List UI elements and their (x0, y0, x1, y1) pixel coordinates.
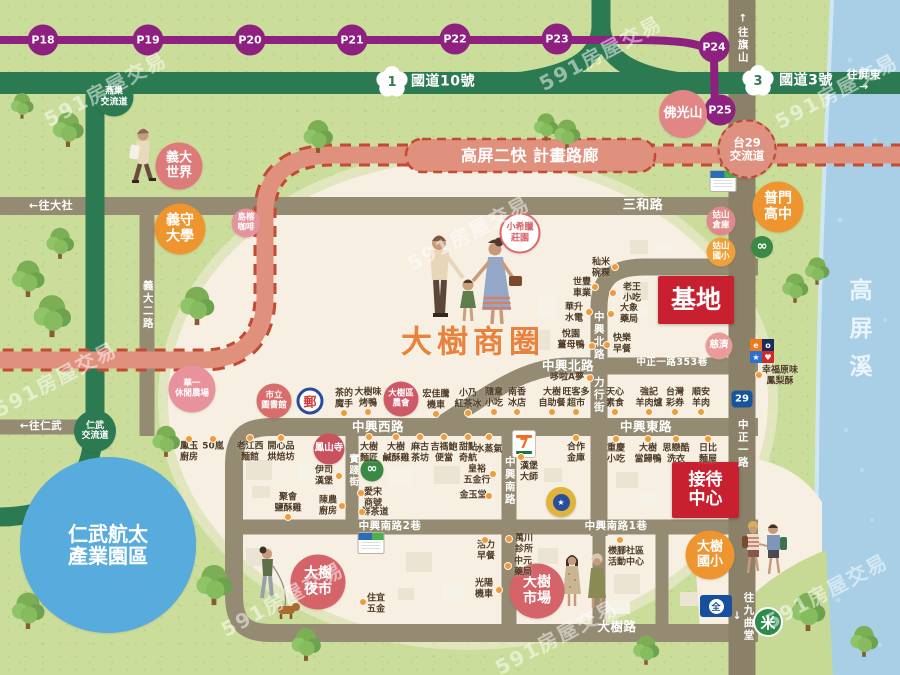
shop-dot (485, 433, 493, 441)
road-label-zhongxing-south-v: 中興南路 (503, 456, 515, 506)
shop-dot (464, 433, 472, 441)
road-label-zhongxing-north-v: 中興北路 (592, 311, 604, 361)
shop-dot (359, 598, 367, 606)
poi-niaorong-cafe: 島榕 咖啡 (232, 209, 261, 238)
shop-label: 悅園 薑母鴨 (557, 329, 584, 350)
pxmart-icon: 全 (700, 595, 732, 617)
shop-label: 世豐 車業 (573, 277, 591, 298)
shop-dot (644, 435, 652, 443)
shop-label: 思戀酷 洗衣 (662, 443, 689, 464)
poi-tzu-chi: 慈濟 (706, 333, 733, 360)
poi-gushan-elementary: 姑山 國小 (707, 238, 736, 267)
poi-isu-university: 義守 大學 (155, 204, 206, 255)
shop-dot (585, 308, 593, 316)
pxmart-glyph: 全 (709, 599, 724, 614)
shop-label: 宏佳騰 機車 (422, 389, 449, 410)
freeway-1-number: 1 (387, 75, 396, 90)
dashu-district-map: 大樹商圈 高屏溪 基地 接待 中心 1 3 29 郵 7 全 ★ 米 e o ★… (0, 0, 900, 675)
poi-fengshan-temple: 鳳山寺 (314, 434, 345, 465)
metro-stop-p19: P19 (133, 25, 164, 56)
route-29-badge: 29 (732, 391, 753, 408)
shop-dot (209, 435, 217, 443)
shop-label: 天心 素食 (606, 387, 624, 408)
shop-dot (185, 435, 193, 443)
poi-dashu-farmers-assoc: 大樹區 農會 (384, 382, 419, 417)
shop-label: 聚會 鹽酥雞 (274, 492, 301, 513)
shop-label: 日比 麵屋 (699, 443, 717, 464)
shop-dot (392, 433, 400, 441)
shop-label: 南香 冰店 (508, 387, 526, 408)
metro-stop-p22: P22 (440, 24, 471, 55)
road-label-to-jiuqutang: 往九曲堂↓ (730, 588, 753, 646)
shop-label: 華升 水電 (565, 302, 583, 323)
shop-dot (416, 433, 424, 441)
shop-label: 伊司 漢堡 (315, 465, 333, 486)
shop-label: 合作 金庫 (567, 442, 585, 463)
site-box: 基地 (658, 276, 734, 324)
shop-label: 甜點 奇航 (459, 442, 477, 463)
shop-label: 麻古 茶坊 (411, 442, 429, 463)
shop-dot (586, 374, 594, 382)
shop-label: 陳農 廚房 (319, 495, 337, 516)
shop-dot (246, 434, 254, 442)
watermark: 591房屋交易 (0, 333, 122, 422)
poi-foguangshan: 佛光山 (659, 90, 707, 138)
poi-gushan-warehouse: 姑山 倉庫 (707, 207, 736, 236)
shop-dot (489, 470, 497, 478)
shop-label: 光陽 機車 (475, 578, 493, 599)
shop-label: 檨腳社區 活動中心 (608, 546, 644, 567)
shop-dot (612, 435, 620, 443)
shop-dot (504, 562, 512, 570)
poi-huayi-farm: 華一 休閒農場 (169, 366, 216, 413)
shop-dot (505, 535, 513, 543)
road-label-shijian-st: 實踐街 (347, 454, 357, 489)
shop-dot (357, 489, 365, 497)
poi-tai29-interchange: 台29 交流道 (718, 120, 777, 179)
poi-renwu-aerotech-park: 仁武航太 產業園區 (20, 457, 196, 633)
shop-dot (517, 453, 525, 461)
road-label-freeway10: 國道10號 (411, 74, 475, 89)
brand-cell: o (762, 339, 774, 351)
road-label-zhongxing-south-lane1: 中興南路1巷 (585, 521, 648, 533)
labels-overlay: 大樹商圈 高屏溪 基地 接待 中心 1 3 29 郵 7 全 ★ 米 e o ★… (0, 0, 900, 675)
shop-dot (335, 472, 343, 480)
freeway-3-number: 3 (753, 74, 762, 89)
road-label-corridor: 高屏二快 計畫路廊 (461, 147, 599, 165)
pineapple-brand-icon: e o ★ ♥ (750, 339, 774, 363)
shop-dot (364, 408, 372, 416)
shop-dot (697, 408, 705, 416)
shop-label: 秈米 碗粿 (592, 257, 610, 278)
shop-label: 茶的 魔手 (335, 388, 353, 409)
shop-label: 開心品 烘焙坊 (267, 441, 294, 462)
shop-label: 中元 藥局 (514, 556, 532, 577)
shop-dot (609, 289, 617, 297)
shop-label: 萬川 診所 (515, 533, 533, 554)
shop-dot (513, 408, 521, 416)
shop-dot (616, 536, 624, 544)
road-label-to-pingtung: 往屏東→ (846, 69, 882, 93)
road-label-dashu-rd: 大樹路 (597, 620, 636, 634)
brand-cell: ★ (750, 351, 762, 363)
shop-dot (645, 408, 653, 416)
poi-yanchao-interchange: 燕巢 交流道 (95, 78, 134, 117)
brand-cell: ♥ (762, 351, 774, 363)
road-label-zhongzheng-lane-353: 中正一路353巷 (636, 358, 707, 368)
shop-label: 金玉堂 (459, 491, 486, 502)
shop-dot (572, 434, 580, 442)
road-label-zhongzheng-1st: 中正一路 (736, 419, 748, 469)
shop-label: 愛宋 商號 (364, 487, 382, 508)
river-name: 高屏溪 (841, 278, 875, 392)
poi-dashu-night-market: 大樹 夜市 (291, 555, 346, 610)
shop-label: 幸福原味 鳳梨酥 (762, 365, 798, 386)
farmers-rice-icon: 米 (753, 607, 783, 637)
brand-cell: e (750, 339, 762, 351)
poi-dashu-elementary: 大樹 國小 (686, 531, 735, 580)
shop-label: 大樹 自助餐 (538, 387, 565, 408)
road-label-freeway3: 國道3號 (779, 73, 833, 88)
road-label-lixing-st: 力行街 (592, 376, 604, 414)
shop-label: 老江西 麵館 (236, 441, 263, 462)
shop-label: 小乃 紅茶冰 (454, 388, 481, 409)
road-label-to-renwu: ←往仁武 (20, 421, 62, 433)
shop-dot (284, 513, 292, 521)
shop-label: 住宜 五金 (367, 593, 385, 614)
shop-dot (603, 341, 611, 349)
shop-dot (440, 433, 448, 441)
shop-label: 重慶 小吃 (607, 443, 625, 464)
police-badge-icon: ★ (546, 487, 576, 517)
shop-label: 大樹 麵匠 (360, 442, 378, 463)
road-label-zhongxing-north-rd: 中興北路 (542, 359, 594, 373)
shop-label: 大象 藥局 (620, 303, 638, 324)
metro-stop-p24: P24 (699, 32, 730, 63)
shop-dot (672, 435, 680, 443)
shop-label: 50嵐 (202, 442, 224, 453)
shop-dot (755, 371, 763, 379)
shop-dot (572, 408, 580, 416)
shop-label: 老王 小吃 (623, 282, 641, 303)
shop-dot (548, 408, 556, 416)
shop-label: 吉禡鮑 便當 (430, 442, 457, 463)
metro-stop-p23: P23 (542, 24, 573, 55)
poi-eda-world: 義大 世界 (156, 143, 203, 190)
metro-stop-p20: P20 (235, 25, 266, 56)
shop-dot (607, 310, 615, 318)
post-glyph: 郵 (303, 392, 316, 411)
shop-dot (490, 408, 498, 416)
shop-label: 大樹 鹹酥雞 (382, 442, 409, 463)
shop-dot (591, 283, 599, 291)
shop-label: 漢堡 大師 (520, 461, 538, 482)
shop-label: 大樹味 烤鴨 (354, 387, 381, 408)
poi-little-greece-manor: 小希臘 莊園 (500, 213, 541, 254)
road-label-zhongxing-east-rd: 中興東路 (620, 420, 672, 434)
shop-dot (338, 502, 346, 510)
shop-label: 旺客多 超市 (562, 387, 589, 408)
poi-renwu-interchange: 仁武 交流道 (74, 410, 116, 452)
shop-dot (495, 586, 503, 594)
freeway-3-badge: 3 (747, 70, 769, 92)
shop-dot (432, 410, 440, 418)
shop-dot (340, 409, 348, 417)
district-title: 大樹商圈 (401, 317, 545, 362)
metro-stop-p25: P25 (705, 95, 736, 126)
shop-label: 台灣 彩券 (666, 387, 684, 408)
shop-dot (464, 409, 472, 417)
police-star: ★ (553, 494, 570, 511)
shop-label: 哆啦A夢 (550, 373, 584, 384)
reception-center-box: 接待 中心 (672, 462, 739, 518)
shop-label: 鳳玉 廚房 (180, 441, 198, 462)
shop-label: 大樹 當歸鴨 (634, 443, 661, 464)
shop-dot (481, 536, 489, 544)
shop-dot (277, 434, 285, 442)
road-label-to-qishan: ↑往旗山 (736, 12, 748, 64)
road-label-zhongxing-west-rd: 中興西路 (352, 420, 404, 434)
shop-dot (365, 433, 373, 441)
shop-label: 水蒸氣 (475, 445, 502, 456)
poi-pumen-highschool: 普門 高中 (753, 182, 804, 233)
shop-dot (485, 492, 493, 500)
shop-dot (611, 263, 619, 271)
shop-dot (358, 508, 366, 516)
shop-dot (704, 435, 712, 443)
shop-label: 快樂 早餐 (613, 333, 631, 354)
road-label-yida-2nd-rd: 義大二路 (141, 280, 153, 330)
shop-label: 隨意 小吃 (485, 387, 503, 408)
shop-label: 順安 羊肉 (692, 387, 710, 408)
road-label-zhongxing-south-lane2: 中興南路2巷 (359, 521, 422, 533)
shop-dot (671, 408, 679, 416)
poi-city-library: 市立 圖書館 (257, 384, 292, 419)
shop-label: 皇裕 五金行 (463, 464, 490, 485)
shop-dot (611, 408, 619, 416)
familymart-icon-south (358, 532, 385, 554)
freeway-1-badge: 1 (381, 71, 403, 93)
shop-label: 強記 羊肉爐 (635, 387, 662, 408)
shop-dot (588, 342, 596, 350)
road-label-to-dashe: ←往大社 (29, 200, 73, 212)
road-label-sanhe-rd: 三和路 (623, 199, 664, 213)
metro-stop-p21: P21 (337, 25, 368, 56)
seven-glyph: 7 (519, 438, 528, 451)
post-office-icon: 郵 (297, 388, 324, 415)
metro-stop-p18: P18 (28, 25, 59, 56)
poi-infinity-north: ∞ (751, 236, 773, 258)
